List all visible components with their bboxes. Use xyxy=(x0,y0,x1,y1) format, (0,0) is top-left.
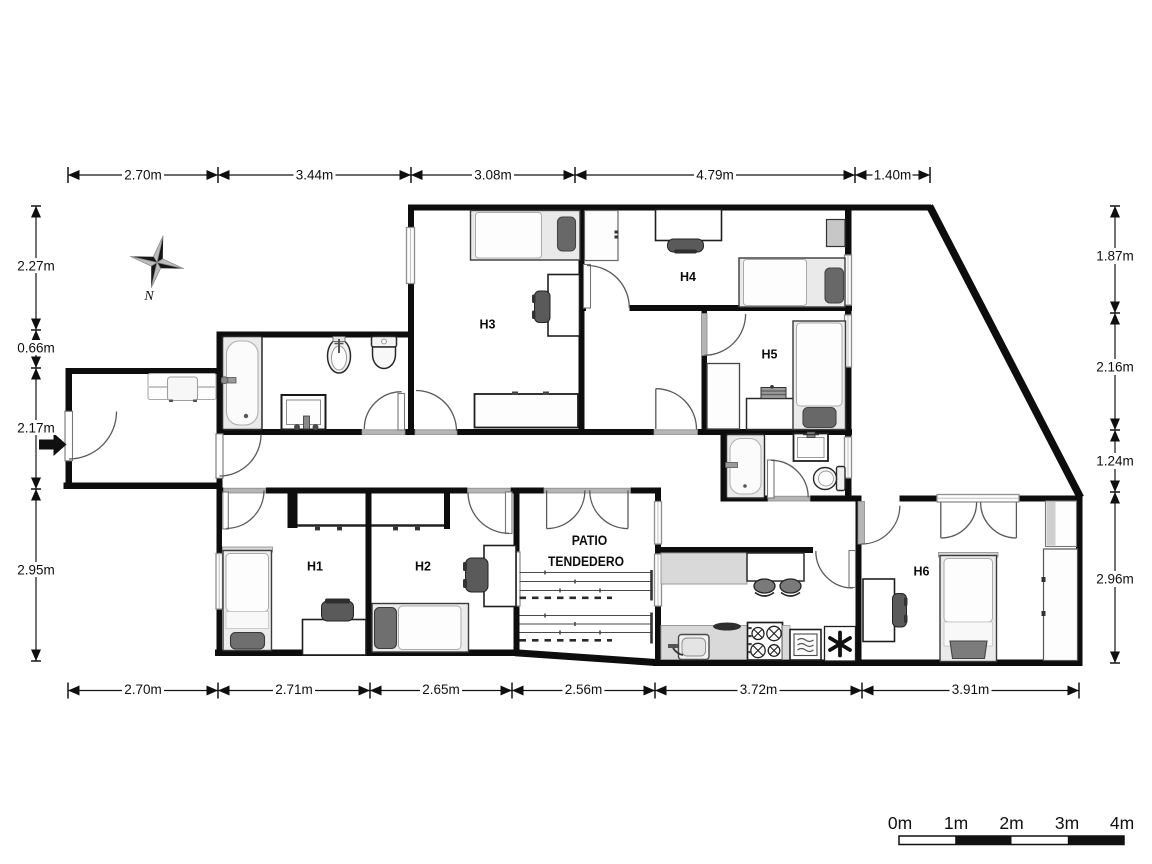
svg-text:2.65m: 2.65m xyxy=(422,682,460,697)
svg-text:4.79m: 4.79m xyxy=(696,167,734,182)
svg-text:H2: H2 xyxy=(415,560,431,574)
svg-text:3.08m: 3.08m xyxy=(474,167,512,182)
svg-text:2.70m: 2.70m xyxy=(124,682,162,697)
svg-text:4m: 4m xyxy=(1110,813,1134,833)
svg-text:2.71m: 2.71m xyxy=(275,682,313,697)
svg-text:2.17m: 2.17m xyxy=(17,421,55,436)
svg-text:1.24m: 1.24m xyxy=(1096,454,1134,469)
svg-text:N: N xyxy=(143,289,154,304)
svg-text:2.96m: 2.96m xyxy=(1096,572,1134,587)
svg-text:2.70m: 2.70m xyxy=(124,167,162,182)
svg-text:0.66m: 0.66m xyxy=(17,341,55,356)
svg-text:2.95m: 2.95m xyxy=(17,563,55,578)
svg-text:H3: H3 xyxy=(480,318,496,332)
svg-text:TENDEDERO: TENDEDERO xyxy=(548,554,624,569)
svg-text:2.16m: 2.16m xyxy=(1096,360,1134,375)
svg-text:2.56m: 2.56m xyxy=(565,682,603,697)
svg-text:H5: H5 xyxy=(762,348,778,362)
svg-text:0m: 0m xyxy=(888,813,912,833)
svg-text:2m: 2m xyxy=(999,813,1023,833)
svg-text:3m: 3m xyxy=(1055,813,1079,833)
svg-text:1.40m: 1.40m xyxy=(874,167,912,182)
svg-text:3.91m: 3.91m xyxy=(952,682,990,697)
svg-text:H1: H1 xyxy=(307,560,323,574)
svg-text:3.72m: 3.72m xyxy=(740,682,778,697)
svg-text:3.44m: 3.44m xyxy=(296,167,334,182)
svg-text:1.87m: 1.87m xyxy=(1096,249,1134,264)
svg-text:H6: H6 xyxy=(914,565,930,579)
svg-text:2.27m: 2.27m xyxy=(17,259,55,274)
svg-text:PATIO: PATIO xyxy=(572,533,608,548)
svg-text:H4: H4 xyxy=(680,270,696,284)
svg-text:1m: 1m xyxy=(944,813,968,833)
